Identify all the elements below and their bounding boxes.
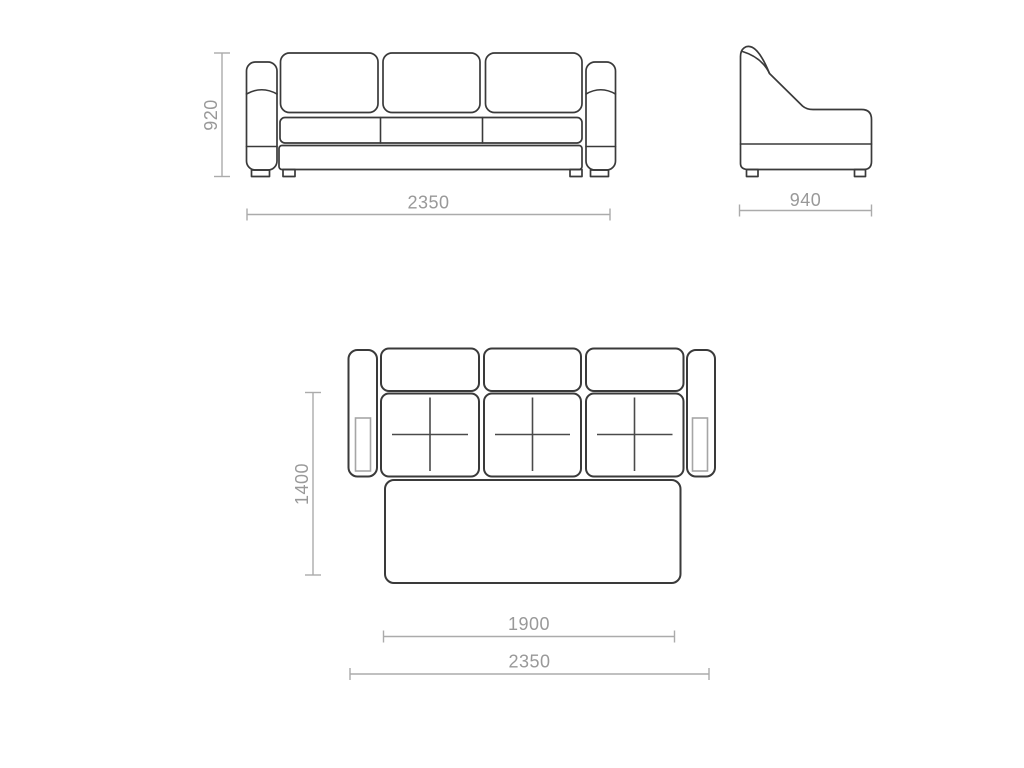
front-left-armrest-seam-arc [247, 90, 278, 94]
front-back-cushion-right [486, 53, 583, 113]
front-base-foot-left [283, 170, 295, 177]
plan-total-width-label: 2350 [508, 652, 550, 672]
plan-back-cushion-left [381, 349, 479, 392]
side-backrest-cushion-arc [743, 52, 770, 74]
front-back-cushion-center [383, 53, 480, 113]
plan-total-width-dimension: 2350 [350, 652, 709, 681]
plan-left-armrest [349, 350, 378, 477]
top-view-unfolded: 1400 1900 [292, 349, 715, 681]
drawing-page: 920 2350 [0, 0, 1024, 768]
front-base [279, 146, 582, 170]
plan-depth-label: 1400 [292, 463, 312, 505]
front-left-armrest [247, 62, 278, 170]
side-profile-outline [741, 46, 872, 169]
plan-right-armrest [687, 350, 715, 477]
front-width-dimension: 2350 [247, 193, 610, 221]
sofa-technical-drawing: 920 2350 [0, 0, 1024, 768]
plan-back-cushion-center [484, 349, 581, 392]
plan-depth-dimension: 1400 [292, 393, 321, 576]
side-view: 940 [740, 46, 872, 216]
side-depth-label: 940 [790, 190, 822, 210]
front-right-armrest-foot [591, 170, 609, 177]
front-base-foot-right [570, 170, 582, 177]
plan-bed-width-dimension: 1900 [384, 614, 675, 643]
front-height-label: 920 [201, 99, 221, 131]
front-right-armrest [586, 62, 616, 170]
plan-left-armrest-inner-panel [356, 418, 371, 471]
front-right-armrest-seam-arc [586, 90, 616, 94]
plan-bed-width-label: 1900 [508, 614, 550, 634]
front-width-label: 2350 [407, 193, 449, 213]
side-foot-left [747, 170, 759, 177]
side-depth-dimension: 940 [740, 190, 872, 217]
front-seat-row [280, 118, 582, 144]
plan-back-cushion-right [586, 349, 684, 392]
front-height-dimension: 920 [201, 53, 230, 177]
side-foot-right [855, 170, 866, 177]
plan-bed-mattress [385, 480, 681, 583]
front-left-armrest-foot [252, 170, 270, 177]
plan-right-armrest-inner-panel [693, 418, 708, 471]
front-view: 920 2350 [201, 53, 616, 221]
front-back-cushion-left [281, 53, 379, 113]
